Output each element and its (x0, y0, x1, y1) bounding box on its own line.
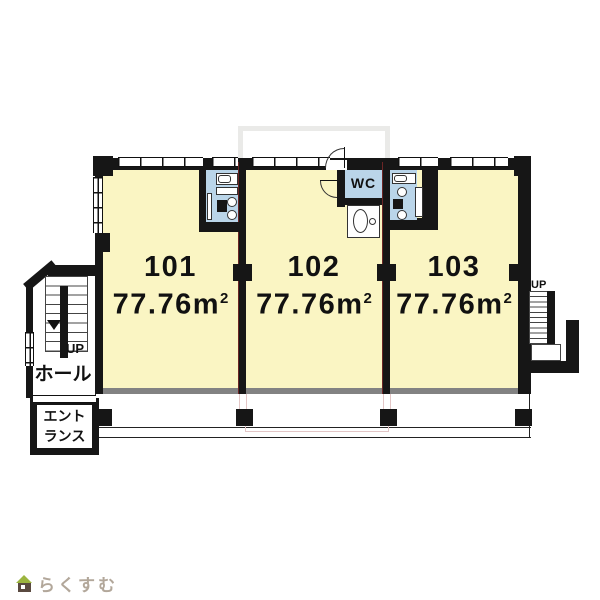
sink-basin-icon (353, 209, 368, 233)
balcony-accent-line (245, 431, 389, 432)
stairs-right-landing (531, 344, 561, 361)
bath-103-cistern-icon (394, 175, 407, 182)
hall-label: ホール (28, 359, 98, 386)
balcony-edge-line-lower (95, 437, 531, 438)
floorplan-canvas: WC 101 77.76m2 102 77.76m2 103 77.76m2 U… (0, 0, 600, 600)
door-102-leaf (344, 147, 345, 168)
balcony-post-stub-1 (239, 394, 247, 409)
bath-103-side-shelf (415, 187, 423, 217)
entrance-label: エント ランス (33, 406, 96, 446)
bath-101-wall-bottom (199, 222, 246, 232)
stairs-down-arrow-icon (47, 320, 61, 330)
bath-101-side-shelf (207, 193, 212, 220)
balcony-column-2 (236, 409, 253, 426)
stairs-right-south-wall (527, 361, 579, 373)
window-north-103b (450, 157, 508, 167)
balcony-edge-line-upper (95, 427, 531, 428)
sink-faucet-icon (369, 218, 376, 225)
entrance-label-line1: エント (33, 406, 96, 426)
hall-entrance-threshold (33, 395, 96, 403)
wc-label: WC (345, 175, 382, 191)
room-102-label: 102 77.76m2 (246, 252, 382, 321)
hall-west-wall-upper (26, 284, 33, 332)
balcony-post-stub-2 (383, 394, 391, 409)
house-icon (16, 574, 33, 592)
window-west-101 (93, 177, 103, 233)
window-north-103a (398, 157, 438, 167)
toilet-icon-101b (227, 210, 237, 220)
toilet-icon-103b (397, 210, 407, 220)
room-103-label: 103 77.76m2 (390, 252, 518, 321)
window-north-102 (252, 157, 330, 167)
toilet-icon-101a (227, 197, 237, 207)
room-101-label: 101 77.76m2 (103, 252, 238, 321)
room-103-number: 103 (390, 252, 518, 283)
bath-101-cistern-icon (218, 175, 231, 183)
bath-103-dark-unit (393, 199, 403, 209)
toilet-icon-103a (397, 187, 407, 197)
balcony-column-1 (95, 409, 112, 426)
wc-wall-bottom (337, 198, 382, 205)
window-north-101b (212, 157, 238, 167)
balcony-column-3 (380, 409, 397, 426)
east-wall (518, 158, 531, 394)
stairs-left-up-label: UP (66, 341, 84, 356)
room-103-area: 77.76m2 (390, 283, 518, 321)
logo-text: らくすむ (38, 571, 118, 596)
room-101-number: 101 (103, 252, 238, 283)
bath-101-dark-unit (217, 200, 227, 212)
entrance-label-line2: ランス (33, 426, 96, 446)
window-north-101a (118, 157, 203, 167)
west-wall-pier (95, 233, 110, 252)
south-wall-gray-band (95, 388, 531, 394)
stairs-right-stringer (547, 291, 555, 348)
stairs-right (529, 291, 548, 344)
bath-101-shelf (216, 187, 238, 195)
balcony-column-4 (515, 409, 532, 426)
logo: らくすむ (16, 572, 118, 594)
room-101-area: 77.76m2 (103, 283, 238, 321)
room-102-area: 77.76m2 (246, 283, 382, 321)
room-102-number: 102 (246, 252, 382, 283)
stairs-right-up-label: UP (531, 279, 546, 291)
